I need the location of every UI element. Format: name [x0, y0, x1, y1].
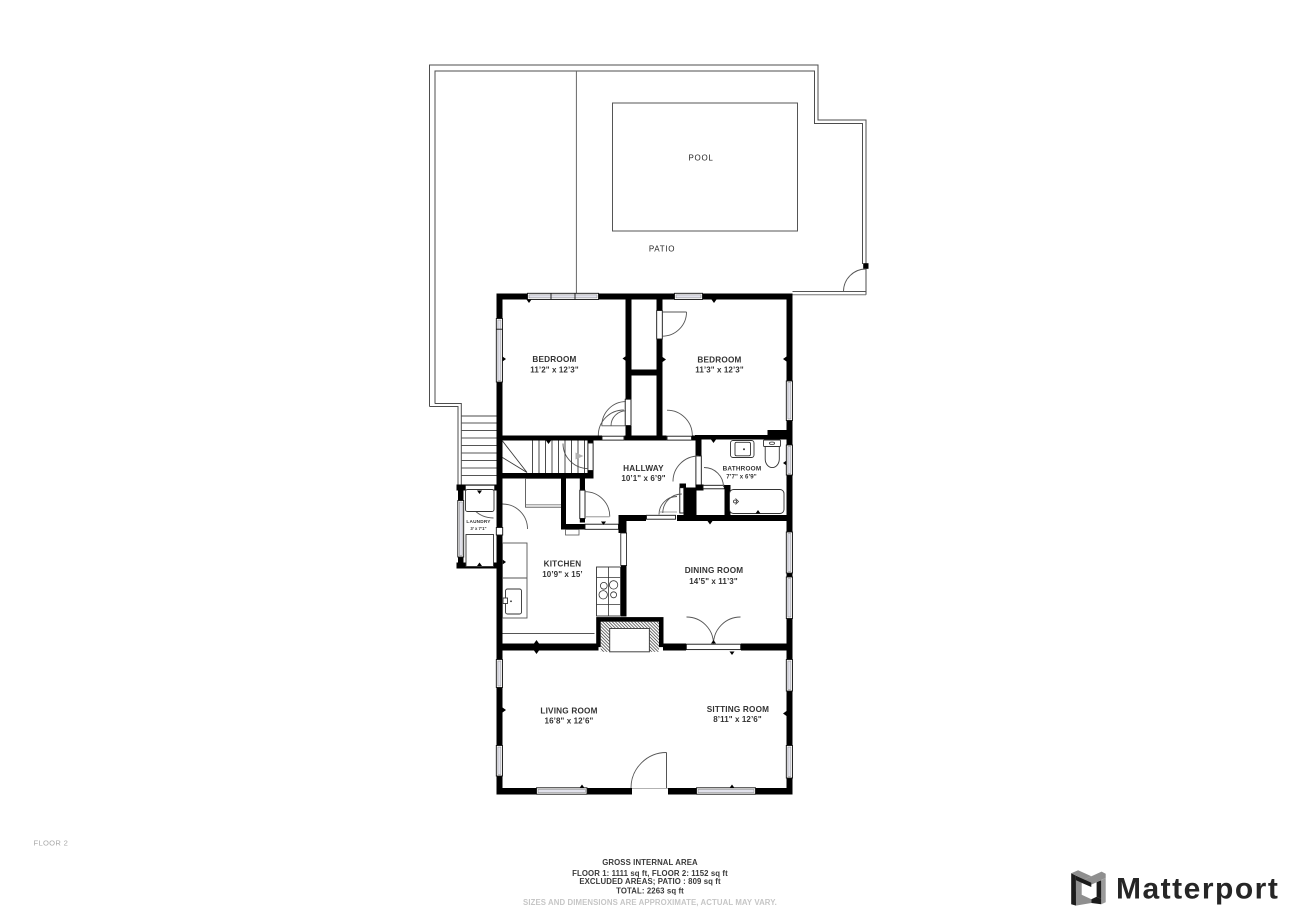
svg-text:16’8" x 12’6": 16’8" x 12’6" [545, 717, 594, 726]
svg-text:11’3" x 12’3": 11’3" x 12’3" [695, 366, 744, 375]
svg-text:10’1" x 6’9": 10’1" x 6’9" [621, 474, 665, 483]
svg-text:TOTAL: 2263 sq ft: TOTAL: 2263 sq ft [616, 887, 684, 896]
svg-text:GROSS INTERNAL AREA: GROSS INTERNAL AREA [602, 858, 698, 867]
svg-text:8’11" x 12’6": 8’11" x 12’6" [713, 715, 762, 724]
svg-text:SIZES AND DIMENSIONS ARE APPRO: SIZES AND DIMENSIONS ARE APPROXIMATE, AC… [523, 898, 777, 907]
svg-text:Matterport: Matterport [1116, 873, 1279, 906]
svg-text:EXCLUDED AREAS; PATIO : 809 sq: EXCLUDED AREAS; PATIO : 809 sq ft [579, 877, 721, 886]
svg-text:HALLWAY: HALLWAY [623, 464, 664, 473]
svg-text:BEDROOM: BEDROOM [697, 356, 741, 365]
svg-text:11’2" x 12’3": 11’2" x 12’3" [530, 366, 579, 375]
svg-text:7’7" x 6’9": 7’7" x 6’9" [726, 474, 757, 481]
svg-text:SITTING ROOM: SITTING ROOM [707, 705, 769, 714]
svg-text:DINING ROOM: DINING ROOM [685, 566, 744, 575]
svg-text:3’ x 7’1": 3’ x 7’1" [470, 526, 486, 531]
svg-text:10’9" x 15’: 10’9" x 15’ [542, 570, 582, 579]
svg-text:BEDROOM: BEDROOM [532, 355, 576, 364]
svg-text:POOL: POOL [688, 154, 713, 163]
svg-text:LIVING ROOM: LIVING ROOM [540, 707, 597, 716]
svg-text:14’5" x 11’3": 14’5" x 11’3" [689, 577, 738, 586]
svg-text:PATIO: PATIO [649, 245, 675, 254]
svg-text:BATHROOM: BATHROOM [723, 466, 762, 473]
svg-text:LAUNDRY: LAUNDRY [466, 519, 491, 524]
svg-text:FLOOR 2: FLOOR 2 [34, 839, 69, 848]
svg-text:KITCHEN: KITCHEN [544, 560, 582, 569]
